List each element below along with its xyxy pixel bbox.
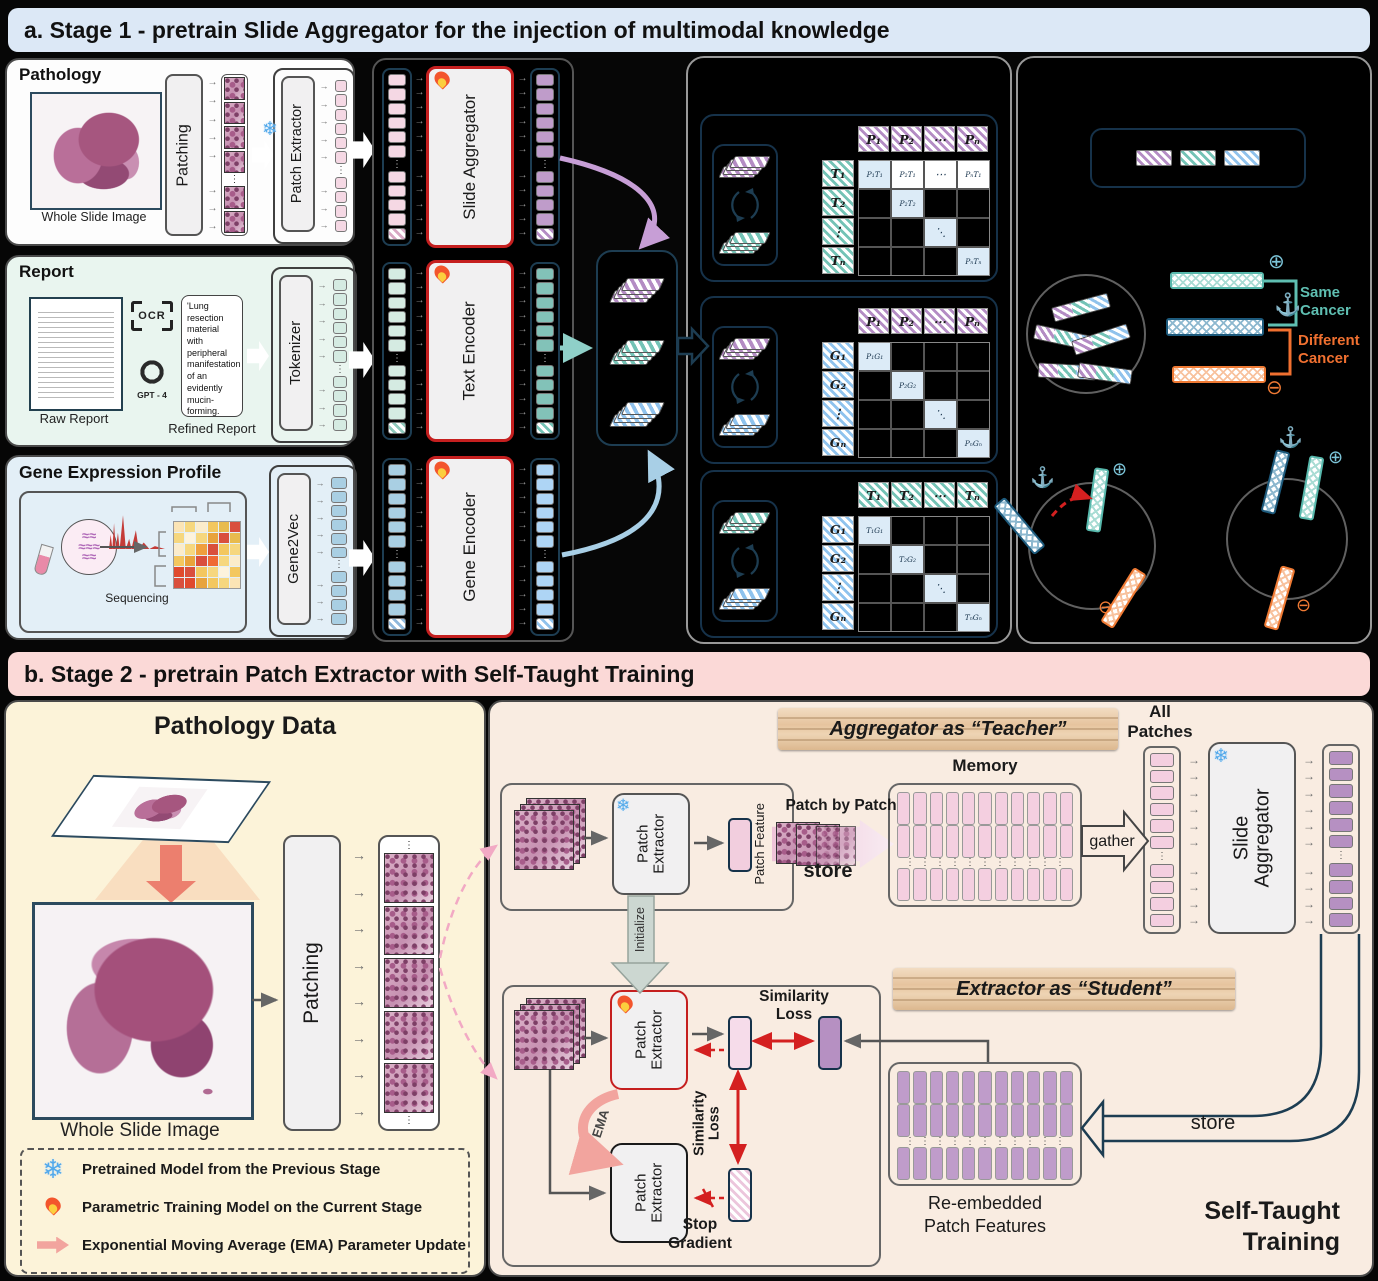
feature-token: [1011, 825, 1024, 858]
feature-token: [1150, 803, 1174, 817]
aggregator-out-arrows: →→→→→→ →→→→: [1299, 754, 1319, 926]
tokenizer-container: Tokenizer →→→→→ →→→ ⋮: [271, 267, 357, 443]
matrix-row-label: Gₙ: [822, 603, 854, 630]
arrow-icon: →: [518, 422, 528, 432]
arrow-icon: →: [318, 299, 327, 308]
feature-token: [1150, 864, 1174, 878]
tissue-patch: [224, 126, 245, 149]
token-row: [897, 1071, 1073, 1104]
arrow-icon: →: [318, 281, 327, 290]
embedding-stack: [721, 510, 769, 536]
ocr-icon: OCR: [131, 301, 173, 331]
matrix-cell: [892, 575, 923, 602]
matrix-col-label: ⋯: [924, 126, 955, 152]
slide-aggregator-label: Slide Aggregator: [461, 94, 479, 220]
dots: ⋮: [1039, 858, 1051, 868]
heatmap-cell: [174, 544, 184, 554]
arrow-icon: →: [518, 478, 528, 488]
arrow-icon: →: [518, 117, 528, 127]
dots: ⋮: [934, 1137, 946, 1147]
matrix-cell: [892, 219, 923, 246]
student-banner: Extractor as “Student”: [893, 968, 1235, 1010]
bar-segment: [1039, 364, 1058, 378]
patch-extractor-label: Patch Extractor: [635, 807, 667, 881]
feature-token: [331, 533, 347, 545]
ocr-label: OCR: [131, 301, 173, 331]
arrow-icon: →: [316, 614, 325, 623]
feature-token: [536, 603, 554, 615]
matrix-cell: [859, 190, 890, 217]
memory-label: Memory: [888, 756, 1082, 776]
feature-token: [388, 603, 406, 615]
gene-in-arrows: →→→→→→ →→→→→: [413, 464, 426, 628]
feature-token: [1329, 768, 1353, 782]
matrix-row-label: G₁: [822, 342, 854, 369]
matrix-slide-gene: P₁P₂⋯PₙG₁G₂⋮GₙP₁G₁P₂G₂⋱PₙGₙ: [700, 296, 998, 464]
arrow-icon: →: [518, 88, 528, 98]
pathology-panel: Pathology Whole Slide Image Patching →→→…: [5, 58, 355, 246]
feature-token: [388, 199, 406, 211]
feature-token: [978, 1104, 991, 1137]
matrix-cell: [958, 190, 989, 217]
plus-icon: ⊕: [1328, 448, 1343, 466]
arrow-icon: →: [518, 535, 528, 545]
arrow-icon: →: [320, 117, 329, 126]
feature-token: [333, 404, 347, 416]
feature-token: [962, 825, 975, 858]
dots: ⋮: [335, 166, 347, 175]
arrow-icon: →: [415, 604, 425, 614]
cls-token: [388, 228, 406, 240]
feature-token: [536, 213, 554, 225]
text-input-tokens: ⋮: [382, 262, 412, 440]
arrow-icon: →: [1188, 803, 1200, 815]
matrix-cell: [958, 575, 989, 602]
matrix-cell: [859, 546, 890, 573]
feature-token: [536, 589, 554, 601]
feature-token: [1011, 868, 1024, 901]
feature-token: [388, 521, 406, 533]
patching-arrows: →→→→→ →→→: [204, 78, 221, 232]
heatmap-cell: [196, 567, 206, 577]
feature-token: [913, 1147, 926, 1180]
feature-token: [536, 145, 554, 157]
feature-token: [388, 185, 406, 197]
plus-icon: ⊕: [1268, 252, 1285, 272]
arrow-icon: →: [208, 96, 218, 106]
text-embedding-stack: [612, 338, 664, 368]
dots: ⋮: [979, 858, 991, 868]
matrix-cell: ⋱: [925, 219, 956, 246]
legend-label: Pretrained Model from the Previous Stage: [82, 1161, 380, 1178]
feature-token: [388, 213, 406, 225]
gene-chip: [1224, 150, 1260, 166]
dots: ⋮: [919, 858, 931, 868]
heatmap-cell: [219, 533, 229, 543]
feature-token: [536, 507, 554, 519]
tissue-patch: [224, 211, 245, 234]
gene-encoder-label: Gene Encoder: [461, 492, 479, 602]
embedding-chip: [729, 338, 771, 350]
feature-token: [913, 1071, 926, 1104]
dots: ⋮: [1329, 851, 1353, 860]
text-encoder-label: Text Encoder: [461, 301, 479, 400]
arrow-icon: →: [208, 78, 218, 88]
matrix-cell: [892, 401, 923, 428]
feature-token: [1043, 1071, 1056, 1104]
gene-panel: Gene Expression Profile ≈≈≈≈≈≈≈ Sequenci…: [5, 455, 355, 640]
matrix-cell: TₙGₙ: [958, 604, 989, 631]
embedding-stack: [721, 412, 769, 438]
arrow-icon: →: [415, 507, 425, 517]
feature-token: [1060, 1071, 1073, 1104]
tissue-patch: [384, 958, 434, 1008]
arrow-icon: →: [415, 131, 425, 141]
matrix-row-label: T₁: [822, 160, 854, 187]
arrow-icon: →: [318, 334, 327, 343]
arrow-icon: →: [208, 115, 218, 125]
arrow-icon: →: [352, 958, 366, 972]
matrix-col-label: ⋯: [924, 308, 955, 334]
feature-token: [1150, 786, 1174, 800]
gpt4-icon: [135, 355, 169, 389]
feature-token: [388, 535, 406, 547]
feature-token: [1150, 836, 1174, 850]
feature-token: [331, 505, 347, 517]
matrix-cell: PₙTₙ: [958, 248, 989, 275]
matrix-row-headers: G₁G₂⋮Gₙ: [822, 342, 854, 456]
heatmap-cell: [185, 556, 195, 566]
matrix-cell: ⋱: [925, 401, 956, 428]
feature-token: [978, 1071, 991, 1104]
fire-icon: [432, 461, 452, 481]
zoom-arrow-head: [146, 881, 196, 903]
snowflake-icon: ❄: [616, 797, 630, 814]
dots: ⋮: [1024, 1137, 1036, 1147]
heatmap-cell: [196, 533, 206, 543]
arrow-icon: →: [415, 365, 425, 375]
arrow-icon: →: [1188, 754, 1200, 766]
dots: ⋮: [388, 550, 406, 559]
arrow-icon: →: [352, 1067, 366, 1081]
matrix-row-label: G₂: [822, 371, 854, 398]
matrix-col-label: Pₙ: [957, 308, 988, 334]
feature-token: [331, 519, 347, 531]
dots: ⋮: [949, 1137, 961, 1147]
heatmap-cell: [196, 544, 206, 554]
embedding-chip: [621, 340, 665, 353]
arrow-icon: →: [1188, 865, 1200, 877]
tissue-patch: [384, 1011, 434, 1061]
heatmap-cell: [185, 544, 195, 554]
feature-token: [962, 1104, 975, 1137]
patch-feature-tokens: ⋮: [331, 76, 351, 236]
arrow-icon: →: [415, 145, 425, 155]
stop-gradient-label: Stop Gradient: [652, 1216, 748, 1253]
feature-token: [388, 339, 406, 351]
feature-token: [1011, 792, 1024, 825]
feature-token: [388, 74, 406, 86]
matrix-cell: P₁T₁: [859, 161, 890, 188]
feature-token: [897, 825, 910, 858]
matrix-cell: T₁G₁: [859, 517, 890, 544]
matrix-cell: [925, 343, 956, 370]
matrix-cell: [859, 575, 890, 602]
arrow-icon: →: [1188, 898, 1200, 910]
dots: ⋮: [333, 365, 347, 374]
arrow-icon: →: [518, 296, 528, 306]
heatmap-cell: [208, 533, 218, 543]
arrow-icon: →: [415, 561, 425, 571]
feature-token: [331, 613, 347, 625]
feature-token: [1043, 1104, 1056, 1137]
arrow-icon: →: [1303, 898, 1315, 910]
sequencing-label: Sequencing: [97, 591, 177, 605]
feature-token: [536, 575, 554, 587]
embedding-stack: [721, 586, 769, 612]
matrix-cell: PₙGₙ: [958, 430, 989, 457]
text-out-arrows: →→→→→→ →→→→→: [516, 268, 529, 432]
refined-report-caption: Refined Report: [159, 421, 265, 436]
anchor-icon: ⚓: [1278, 428, 1303, 448]
feature-token: [335, 109, 347, 121]
matrix-row-label: Gₙ: [822, 429, 854, 456]
cycle-arrows-icon: [730, 370, 760, 404]
cls-token: [536, 422, 554, 434]
arrow-icon: →: [352, 994, 366, 1008]
feature-token: [335, 151, 347, 163]
gene-embedding-stack: [612, 400, 664, 430]
extractor-arrows: →→→→→ →→→: [317, 82, 331, 230]
arrow-icon: →: [518, 311, 528, 321]
feature-token: [335, 137, 347, 149]
feature-token: [1043, 792, 1056, 825]
heatmap-cell: [208, 544, 218, 554]
arrow-icon: →: [415, 339, 425, 349]
arrow-icon: →: [208, 204, 218, 214]
embedding-chip: [729, 414, 771, 426]
matrix-cell: [925, 604, 956, 631]
bar-segment: [1057, 365, 1076, 379]
cls-token: [536, 618, 554, 630]
heatmap-cell: [219, 556, 229, 566]
feature-token: [388, 589, 406, 601]
feature-token: [335, 123, 347, 135]
arrow-icon: →: [518, 575, 528, 585]
arrow-icon: →: [518, 228, 528, 238]
dots: ⋮: [1009, 858, 1021, 868]
matrix-col-label: Pₙ: [957, 126, 988, 152]
token-row: [897, 1147, 1073, 1180]
arrow-icon: →: [318, 351, 327, 360]
student-banner-label: Extractor as “Student”: [956, 978, 1172, 1001]
heatmap-cell: [174, 533, 184, 543]
feature-token: [536, 407, 554, 419]
tissue-patch: [384, 906, 434, 956]
feature-token: [333, 308, 347, 320]
anchor-icon: ⚓: [1030, 468, 1055, 488]
matrix-cell: [958, 401, 989, 428]
sequencing-illustration: ≈≈≈≈≈≈≈ Sequencing: [19, 491, 247, 633]
slide-output-tokens: ⋮: [530, 68, 560, 246]
feature-token: [331, 585, 347, 597]
feature-token: [930, 1071, 943, 1104]
feature-token: [536, 561, 554, 573]
patch-strip: ⋮: [221, 74, 248, 236]
gene-input-tokens: ⋮: [382, 458, 412, 636]
feature-token: [331, 571, 347, 583]
matrix-row-headers: G₁G₂⋮Gₙ: [822, 516, 854, 630]
text-output-tokens: ⋮: [530, 262, 560, 440]
embedding-chip: [621, 278, 665, 291]
arrow-icon: →: [518, 185, 528, 195]
feature-token: [1027, 792, 1040, 825]
arrow-icon: →: [320, 221, 329, 230]
arrow-icon: →: [1303, 803, 1315, 815]
patch-feature-label: Patch Feature: [753, 803, 767, 885]
all-patches-column: ⋮: [1143, 746, 1181, 934]
legend-item: Parametric Training Model on the Current…: [22, 1188, 468, 1226]
arrow-icon: →: [208, 133, 218, 143]
feature-token: [335, 220, 347, 232]
feature-token: [536, 339, 554, 351]
matrix-cell: [859, 372, 890, 399]
dots: ⋮: [934, 858, 946, 868]
feature-token: [333, 279, 347, 291]
heatmap-cell: [230, 556, 240, 566]
memory-grid: ⋮⋮⋮⋮⋮⋮⋮⋮⋮⋮⋮: [888, 783, 1082, 907]
arrow-icon: →: [415, 117, 425, 127]
arrow-icon: →: [415, 268, 425, 278]
feature-token: [1043, 825, 1056, 858]
dots: ⋮: [1054, 1137, 1066, 1147]
heatmap-cell: [230, 567, 240, 577]
tissue-patch: [384, 853, 434, 903]
feature-token: [1043, 1147, 1056, 1180]
feature-token: [335, 177, 347, 189]
gpt4-label: GPT - 4: [125, 390, 179, 400]
feature-token: [913, 1104, 926, 1137]
arrow-icon: →: [518, 561, 528, 571]
feature-token: [1027, 1104, 1040, 1137]
feature-token: [1027, 825, 1040, 858]
arrow-icon: →: [1303, 820, 1315, 832]
feature-token: [331, 477, 347, 489]
all-patches-label: All Patches: [1118, 702, 1202, 741]
arrow-icon: →: [318, 420, 327, 429]
teacher-banner-label: Aggregator as “Teacher”: [829, 718, 1066, 741]
test-tube-icon: [33, 544, 54, 576]
matrix-cell: P₂T₁: [892, 161, 923, 188]
heatmap-cell: [230, 578, 240, 588]
arrow-icon: →: [415, 185, 425, 195]
feature-token: [333, 322, 347, 334]
dots: ⋮: [388, 354, 406, 363]
feature-token: [333, 376, 347, 388]
tissue-patch: [224, 102, 245, 125]
dots: ⋮: [384, 1116, 434, 1125]
cycle-box: [712, 500, 778, 622]
embedding-chip: [729, 588, 771, 600]
arrow-icon: →: [318, 316, 327, 325]
snowflake-icon: ❄: [42, 1165, 64, 1182]
feature-token: [536, 74, 554, 86]
feature-token: [536, 199, 554, 211]
arrow-icon: →: [415, 88, 425, 98]
feature-token: [536, 131, 554, 143]
feature-token: [388, 311, 406, 323]
matrix-cell: [925, 190, 956, 217]
embedding-chip: [621, 402, 665, 415]
feature-token: [388, 117, 406, 129]
feature-token: [897, 1071, 910, 1104]
pathology-title: Pathology: [19, 65, 101, 85]
arrow-icon: →: [316, 530, 325, 539]
matrix-col-label: P₁: [858, 308, 889, 334]
matrix-row-label: G₂: [822, 545, 854, 572]
matrix-cell: [892, 248, 923, 275]
feature-token: [1060, 1147, 1073, 1180]
feature-token: [335, 191, 347, 203]
feature-token: [1329, 880, 1353, 894]
dots: ⋮: [1009, 1137, 1021, 1147]
fire-icon: [432, 265, 452, 285]
arrow-icon: →: [320, 100, 329, 109]
feature-token: [333, 390, 347, 402]
arrow-icon: →: [316, 547, 325, 556]
legend-label: Exponential Moving Average (EMA) Paramet…: [82, 1237, 466, 1254]
snowflake-icon: ❄: [1213, 747, 1229, 766]
feature-token: [388, 561, 406, 573]
feature-token: [1329, 863, 1353, 877]
arrow-icon: →: [518, 171, 528, 181]
feature-token: [536, 311, 554, 323]
feature-token: [536, 117, 554, 129]
matrix-cell: [925, 372, 956, 399]
arrow-icon: →: [518, 365, 528, 375]
feature-token: [1060, 825, 1073, 858]
patching-box: Patching: [165, 74, 203, 236]
matrix-slide-text: P₁P₂⋯PₙT₁T₂⋮TₙP₁T₁P₂T₁⋯PₙT₁P₂T₂⋱PₙTₙ: [700, 114, 998, 282]
arrow-icon: →: [415, 214, 425, 224]
matrix-cell: [892, 343, 923, 370]
matrix-cell: [925, 517, 956, 544]
heatmap-cell: [174, 578, 184, 588]
text-in-arrows: →→→→→→ →→→→→: [413, 268, 426, 432]
matrix-cell: [859, 219, 890, 246]
matrix-col-label: ⋯: [924, 482, 955, 508]
embedding-stack: [721, 230, 769, 256]
arrow-icon: →: [318, 403, 327, 412]
fire-icon: [432, 71, 452, 91]
heatmap-cell: [219, 522, 229, 532]
heatmap-cell: [185, 567, 195, 577]
feature-token: [995, 792, 1008, 825]
dots: ⋮: [964, 858, 976, 868]
feature-token: [978, 792, 991, 825]
feature-token: [1329, 835, 1353, 849]
feature-token: [946, 1071, 959, 1104]
arrow-icon: →: [415, 521, 425, 531]
token-row: ⋮⋮⋮⋮⋮⋮⋮⋮⋮⋮⋮: [897, 858, 1073, 868]
dots: ⋮: [919, 1137, 931, 1147]
arrow-icon: →: [1303, 770, 1315, 782]
matrix-cell: [859, 401, 890, 428]
store-label: store: [1178, 1112, 1248, 1135]
arrow-icon: →: [415, 74, 425, 84]
matrix-col-label: T₁: [858, 482, 889, 508]
wsi-caption: Whole Slide Image: [32, 1120, 248, 1142]
